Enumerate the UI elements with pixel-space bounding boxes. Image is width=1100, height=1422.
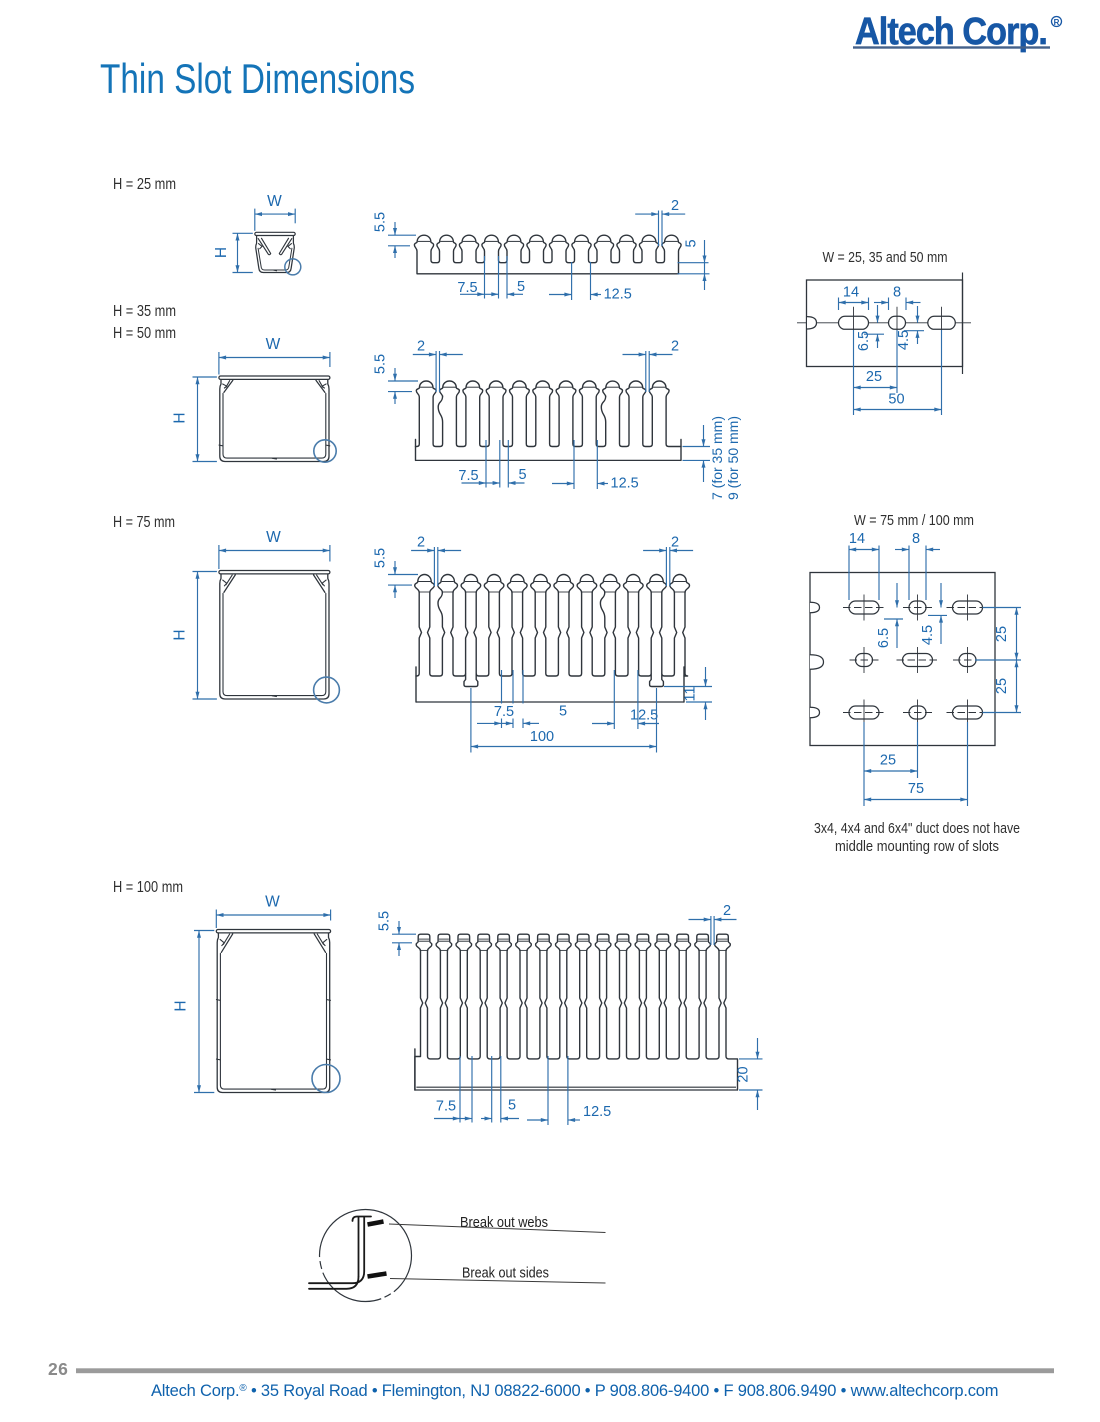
svg-text:14: 14 (849, 531, 865, 547)
svg-text:26: 26 (48, 1359, 68, 1379)
svg-text:5: 5 (559, 704, 567, 720)
svg-text:7.5: 7.5 (458, 468, 478, 484)
svg-text:W = 75 mm / 100 mm: W = 75 mm / 100 mm (854, 512, 974, 529)
svg-text:4.5: 4.5 (920, 625, 936, 645)
svg-text:7 (for 35 mm): 7 (for 35 mm) (709, 416, 725, 500)
svg-text:5.5: 5.5 (373, 548, 389, 568)
svg-text:H = 35 mm: H = 35 mm (113, 303, 176, 320)
svg-text:R: R (1054, 18, 1060, 27)
svg-text:14: 14 (843, 285, 859, 301)
svg-text:5.5: 5.5 (377, 911, 393, 931)
svg-text:2: 2 (723, 903, 731, 919)
svg-text:5: 5 (508, 1098, 516, 1114)
svg-text:W = 25, 35 and 50 mm: W = 25, 35 and 50 mm (823, 249, 948, 266)
svg-text:H: H (172, 412, 189, 423)
svg-text:12.5: 12.5 (611, 476, 639, 492)
svg-text:5.5: 5.5 (373, 354, 389, 374)
svg-text:H = 100 mm: H = 100 mm (113, 879, 183, 896)
svg-text:5: 5 (517, 279, 525, 295)
svg-text:7.5: 7.5 (457, 280, 477, 296)
svg-text:middle mounting row of slots: middle mounting row of slots (835, 838, 999, 855)
svg-text:8: 8 (912, 531, 920, 547)
svg-text:2: 2 (417, 339, 425, 355)
svg-text:2: 2 (417, 535, 425, 551)
svg-text:5: 5 (684, 239, 700, 247)
svg-text:25: 25 (994, 678, 1010, 694)
svg-text:2: 2 (671, 535, 679, 551)
svg-text:Thin Slot Dimensions: Thin Slot Dimensions (100, 55, 415, 102)
svg-text:7.5: 7.5 (494, 704, 514, 720)
svg-text:H = 50 mm: H = 50 mm (113, 325, 176, 342)
svg-text:5.5: 5.5 (373, 212, 389, 232)
svg-text:8: 8 (893, 285, 901, 301)
svg-text:W: W (265, 894, 280, 911)
svg-text:4.5: 4.5 (896, 330, 912, 350)
svg-text:Break out webs: Break out webs (460, 1214, 548, 1231)
svg-text:50: 50 (888, 392, 904, 408)
svg-text:H = 75 mm: H = 75 mm (113, 514, 175, 531)
svg-text:3x4, 4x4 and 6x4" duct does no: 3x4, 4x4 and 6x4" duct does not have (814, 820, 1020, 837)
svg-text:75: 75 (908, 781, 924, 797)
svg-text:H: H (173, 1000, 190, 1011)
svg-text:H: H (172, 629, 189, 640)
svg-text:25: 25 (880, 753, 896, 769)
svg-text:25: 25 (866, 369, 882, 385)
svg-text:2: 2 (671, 198, 679, 214)
svg-text:7.5: 7.5 (436, 1099, 456, 1115)
svg-text:Break out sides: Break out sides (462, 1265, 549, 1282)
svg-text:W: W (266, 529, 281, 546)
svg-text:6.5: 6.5 (876, 628, 892, 648)
svg-text:9 (for 50 mm): 9 (for 50 mm) (725, 416, 741, 500)
svg-text:25: 25 (994, 626, 1010, 642)
svg-text:W: W (266, 336, 281, 353)
svg-text:100: 100 (530, 729, 554, 745)
svg-text:2: 2 (671, 339, 679, 355)
svg-text:H = 25 mm: H = 25 mm (113, 176, 176, 193)
svg-text:20: 20 (736, 1066, 752, 1082)
svg-text:W: W (267, 193, 282, 210)
svg-text:12.5: 12.5 (604, 287, 632, 303)
svg-text:H: H (213, 247, 230, 258)
svg-text:Altech Corp.® • 35 Royal Road: Altech Corp.® • 35 Royal Road • Flemingt… (151, 1382, 998, 1400)
svg-text:5: 5 (518, 467, 526, 483)
svg-text:6.5: 6.5 (856, 331, 872, 351)
svg-text:12.5: 12.5 (630, 708, 658, 724)
svg-text:11: 11 (683, 686, 699, 701)
svg-text:12.5: 12.5 (583, 1104, 611, 1120)
